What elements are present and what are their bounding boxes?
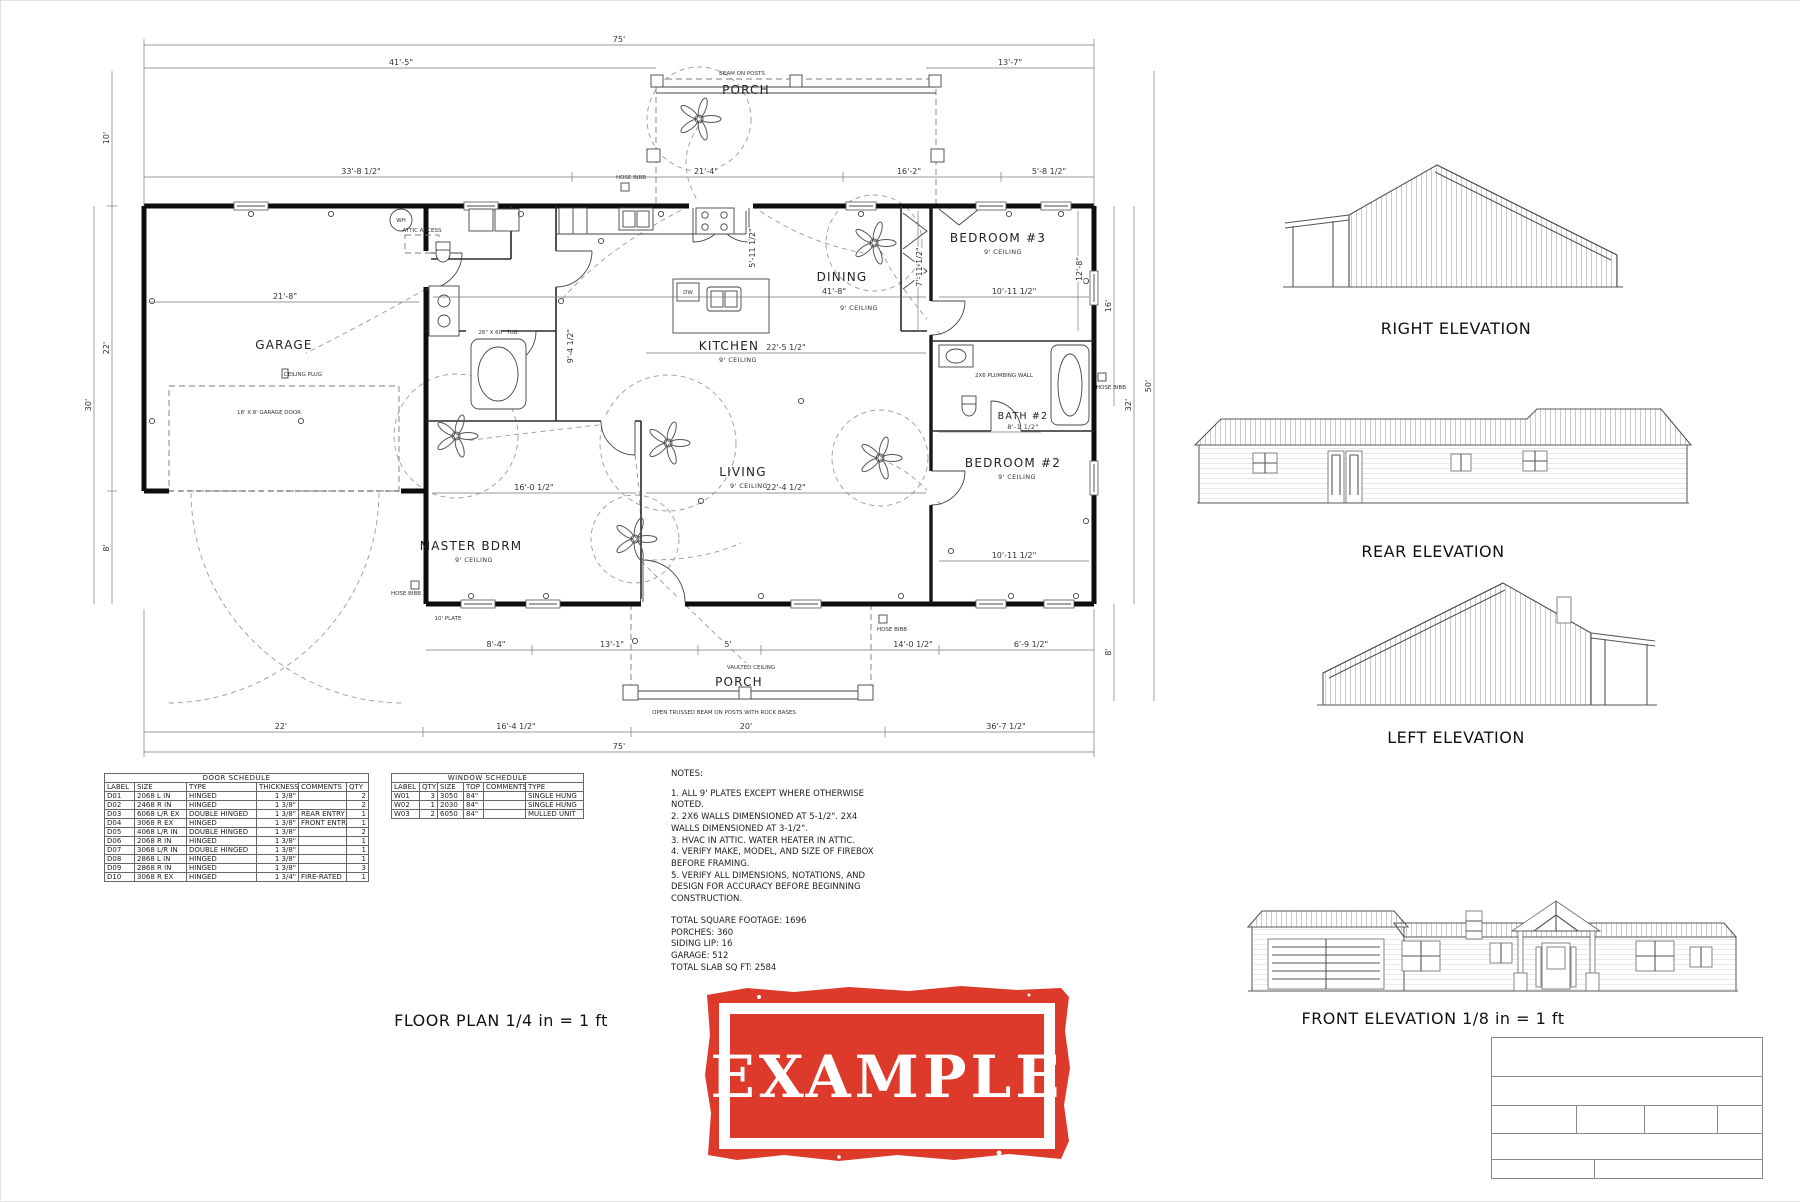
note-item: 5. VERIFY ALL DIMENSIONS, NOTATIONS, AND… (671, 871, 885, 906)
dim-b4: 14'-0 1/2" (893, 640, 932, 649)
dim-t6: 5'-8 1/2" (1032, 167, 1066, 176)
title-block-cell (1644, 1105, 1718, 1134)
window-cell: W03 (392, 810, 420, 819)
door-cell: HINGED (187, 837, 257, 846)
window-row: W013305084"SINGLE HUNG (392, 792, 584, 801)
door-cell: HINGED (187, 819, 257, 828)
door-row: D103068 R EXHINGED1 3/4"FIRE-RATED1 (105, 873, 369, 882)
door-cell: D02 (105, 801, 135, 810)
door-cell: 1 3/8" (257, 828, 299, 837)
open-trussed-note: OPEN TRUSSED BEAM ON POSTS WITH ROCK BAS… (652, 710, 796, 716)
door-cell: 2068 L IN (135, 792, 187, 801)
door-cell: 1 3/8" (257, 855, 299, 864)
wh-note: WH (396, 218, 406, 224)
window-cell (484, 810, 526, 819)
door-cell: D05 (105, 828, 135, 837)
door-cell: FRONT ENTRY (299, 819, 347, 828)
window-schedule: WINDOW SCHEDULE LABEL QTY SIZE TOP COMME… (391, 773, 584, 819)
room-kitchen: KITCHEN (699, 339, 759, 353)
window-col-comments: COMMENTS (484, 783, 526, 792)
door-col-size: SIZE (135, 783, 187, 792)
plumbing-wall-note: 2X6 PLUMBING WALL (975, 373, 1034, 379)
door-cell: 3 (347, 864, 369, 873)
porch-top-outline (647, 75, 944, 206)
rear-elevation-drawing (1193, 391, 1693, 521)
ceiling-fan-symbols (436, 97, 902, 561)
door-cell: 1 3/8" (257, 810, 299, 819)
door-cell: 1 3/8" (257, 819, 299, 828)
door-cell: 1 (347, 837, 369, 846)
window-col-top: TOP (464, 783, 484, 792)
dim-b6: 22' (275, 722, 287, 731)
dim-m10: 9'-4 1/2" (566, 329, 575, 363)
room-dining: DINING (817, 270, 868, 284)
dim-r4: 50' (1144, 380, 1153, 392)
total-garage: GARAGE: 512 (671, 951, 885, 963)
hose-bibb-bottom: HOSE BIBB (877, 627, 907, 633)
total-siding: SIDING LIP: 16 (671, 939, 885, 951)
dim-b1: 8'-4" (487, 640, 506, 649)
door-cell: 3068 L/R IN (135, 846, 187, 855)
window-cell: 84" (464, 792, 484, 801)
window-col-label: LABEL (392, 783, 420, 792)
window-col-qty: QTY (420, 783, 438, 792)
dim-m4: 16'-0 1/2" (514, 483, 553, 492)
door-row: D062068 R INHINGED1 3/8"1 (105, 837, 369, 846)
plate-note: 10' PLATE (435, 616, 462, 622)
window-row: W032605084"MULLED UNIT (392, 810, 584, 819)
dim-b9: 36'-7 1/2" (986, 722, 1025, 731)
right-elevation-drawing (1279, 149, 1627, 311)
door-cell: HINGED (187, 801, 257, 810)
dim-m7: 7'-11 1/2" (915, 247, 924, 286)
dim-t5: 16'-2" (897, 167, 921, 176)
door-cell: REAR ENTRY (299, 810, 347, 819)
dim-m5: 22'-4 1/2" (766, 483, 805, 492)
door-cell: 1 (347, 846, 369, 855)
door-cell: 2068 R IN (135, 837, 187, 846)
door-cell: 2 (347, 792, 369, 801)
title-block-cell (1491, 1076, 1763, 1106)
floor-plan-drawing: 75' 41'-5" 13'-7" 33'-8 1/2" 21'-4" 16'-… (81, 31, 1171, 771)
door-cell: 3068 R EX (135, 873, 187, 882)
door-cell: D01 (105, 792, 135, 801)
dimension-labels: 75' 41'-5" 13'-7" 33'-8 1/2" 21'-4" 16'-… (84, 35, 1153, 751)
door-cell: D04 (105, 819, 135, 828)
dim-m1: 41'-8" (822, 287, 846, 296)
door-cell: D08 (105, 855, 135, 864)
door-cell: DOUBLE HINGED (187, 846, 257, 855)
rear-elevation-caption: REAR ELEVATION (1283, 542, 1583, 561)
door-cell: HINGED (187, 864, 257, 873)
door-cell: HINGED (187, 855, 257, 864)
door-cell: 3068 R EX (135, 819, 187, 828)
dim-m2: 10'-11 1/2" (992, 287, 1037, 296)
total-slab: TOTAL SLAB SQ FT: 2584 (671, 963, 885, 975)
notes-title: NOTES: (671, 769, 885, 781)
door-cell: D09 (105, 864, 135, 873)
dim-m3: 22'-5 1/2" (766, 343, 805, 352)
hose-bibb-top: HOSE BIBB (616, 175, 646, 181)
dim-g1: 21'-8" (273, 292, 297, 301)
dim-overall-bottom: 75' (613, 742, 625, 751)
dim-l1: 10' (102, 132, 111, 144)
dim-t4: 21'-4" (694, 167, 718, 176)
walls (144, 206, 1094, 604)
door-cell: 6068 L/R EX (135, 810, 187, 819)
door-cell: 1 3/8" (257, 864, 299, 873)
door-cell (299, 792, 347, 801)
door-cell: HINGED (187, 792, 257, 801)
dw-note: DW (683, 290, 693, 296)
door-cell (299, 855, 347, 864)
title-block-cell (1491, 1133, 1763, 1160)
door-row: D043068 R EXHINGED1 3/8"FRONT ENTRY1 (105, 819, 369, 828)
door-cell: 1 (347, 873, 369, 882)
door-cell: 2 (347, 828, 369, 837)
window-cell: SINGLE HUNG (526, 801, 584, 810)
door-row: D092868 R INHINGED1 3/8"3 (105, 864, 369, 873)
door-schedule: DOOR SCHEDULE LABEL SIZE TYPE THICKNESS … (104, 773, 369, 882)
dim-t1: 41'-5" (389, 58, 413, 67)
floor-plan-caption: FLOOR PLAN 1/4 in = 1 ft (351, 1011, 651, 1030)
dim-b7: 16'-4 1/2" (496, 722, 535, 731)
door-cell: DOUBLE HINGED (187, 828, 257, 837)
door-cell: D07 (105, 846, 135, 855)
title-block-cell (1491, 1105, 1577, 1134)
dim-t3: 33'-8 1/2" (341, 167, 380, 176)
door-cell (299, 846, 347, 855)
door-cell: 1 3/8" (257, 837, 299, 846)
door-schedule-title: DOOR SCHEDULE (105, 774, 369, 783)
right-elevation-caption: RIGHT ELEVATION (1306, 319, 1606, 338)
note-item: 2. 2X6 WALLS DIMENSIONED AT 5-1/2". 2X4 … (671, 812, 885, 835)
door-cell: 1 3/8" (257, 792, 299, 801)
door-col-qty: QTY (347, 783, 369, 792)
window-cell (484, 792, 526, 801)
door-schedule-header-row: LABEL SIZE TYPE THICKNESS COMMENTS QTY (105, 783, 369, 792)
window-cell: 2030 (438, 801, 464, 810)
tub-note: 26" X 60" TUB (478, 330, 517, 336)
example-stamp: EXAMPLE (699, 983, 1075, 1169)
door-row: D012068 L INHINGED1 3/8"2 (105, 792, 369, 801)
window-cell: W02 (392, 801, 420, 810)
garage-door-outline (169, 386, 399, 491)
door-cell: 1 3/4" (257, 873, 299, 882)
note-item: 4. VERIFY MAKE, MODEL, AND SIZE OF FIREB… (671, 847, 885, 870)
door-cell: HINGED (187, 873, 257, 882)
hose-bibb-left: HOSE BIBB (391, 591, 421, 597)
room-dining-ceiling: 9' CEILING (840, 304, 878, 312)
window-cell: 3050 (438, 792, 464, 801)
room-living-ceiling: 9' CEILING (730, 482, 768, 490)
window-schedule-title: WINDOW SCHEDULE (392, 774, 584, 783)
door-cell (299, 828, 347, 837)
stamp-text: EXAMPLE (711, 1043, 1064, 1111)
dim-r3: 32' (1124, 399, 1133, 411)
door-row: D022468 R INHINGED1 3/8"2 (105, 801, 369, 810)
room-bedroom2: BEDROOM #2 (965, 456, 1061, 470)
window-cell: 1 (420, 801, 438, 810)
notes-block: NOTES: 1. ALL 9' PLATES EXCEPT WHERE OTH… (671, 769, 885, 975)
hose-bibb-right: HOSE BIBB (1096, 385, 1126, 391)
door-row: D036068 L/R EXDOUBLE HINGED1 3/8"REAR EN… (105, 810, 369, 819)
room-bath2: BATH #2 (998, 411, 1049, 422)
title-block-cell (1491, 1159, 1595, 1179)
door-cell: FIRE-RATED (299, 873, 347, 882)
dim-b2: 13'-1" (600, 640, 624, 649)
door-cell (299, 864, 347, 873)
door-col-thickness: THICKNESS (257, 783, 299, 792)
window-cell: 84" (464, 810, 484, 819)
window-cell: W01 (392, 792, 420, 801)
window-cell (484, 801, 526, 810)
door-cell (299, 801, 347, 810)
room-living: LIVING (719, 465, 766, 479)
note-item: 1. ALL 9' PLATES EXCEPT WHERE OTHERWISE … (671, 789, 885, 812)
dim-b3: 5' (724, 640, 731, 649)
window-schedule-header-row: LABEL QTY SIZE TOP COMMENTS TYPE (392, 783, 584, 792)
total-sqft: TOTAL SQUARE FOOTAGE: 1696 (671, 916, 885, 928)
drawing-sheet: 75' 41'-5" 13'-7" 33'-8 1/2" 21'-4" 16'-… (0, 0, 1800, 1202)
room-master-ceiling: 9' CEILING (455, 556, 493, 564)
vaulted-ceiling-note: VAULTED CEILING (727, 665, 775, 671)
title-block (1491, 1037, 1763, 1179)
room-garage: GARAGE (255, 338, 312, 352)
door-col-comments: COMMENTS (299, 783, 347, 792)
door-cell (299, 837, 347, 846)
note-item: 3. HVAC IN ATTIC. WATER HEATER IN ATTIC. (671, 836, 885, 848)
door-cell: 4068 L/R IN (135, 828, 187, 837)
garage-door-note: 18' X 8' GARAGE DOOR (237, 410, 301, 416)
window-cell: 6050 (438, 810, 464, 819)
ceiling-plug-note: CEILING PLUG (284, 372, 322, 378)
dim-overall-top: 75' (613, 35, 625, 44)
left-elevation-caption: LEFT ELEVATION (1306, 728, 1606, 747)
door-cell: 2 (347, 801, 369, 810)
door-cell: 1 3/8" (257, 846, 299, 855)
room-kitchen-ceiling: 9' CEILING (719, 356, 757, 364)
outlet-symbols (149, 211, 1088, 643)
door-cell: 1 3/8" (257, 801, 299, 810)
door-cell: D03 (105, 810, 135, 819)
title-block-cell (1576, 1105, 1645, 1134)
door-col-label: LABEL (105, 783, 135, 792)
window-cell: 84" (464, 801, 484, 810)
left-elevation-drawing (1313, 571, 1661, 723)
window-col-size: SIZE (438, 783, 464, 792)
window-row: W021203084"SINGLE HUNG (392, 801, 584, 810)
door-cell: 1 (347, 855, 369, 864)
door-cell: D06 (105, 837, 135, 846)
dim-b8: 20' (740, 722, 752, 731)
dim-t2: 13'-7" (998, 58, 1022, 67)
room-porch-bottom: PORCH (715, 675, 763, 689)
interior-walls (426, 206, 1094, 604)
door-cell: DOUBLE HINGED (187, 810, 257, 819)
door-cell: D10 (105, 873, 135, 882)
room-bedroom3-ceiling: 9' CEILING (984, 248, 1022, 256)
dim-r2: 8' (1104, 648, 1113, 655)
bath2-width: 8'-1 1/2" (1007, 423, 1039, 431)
door-cell: 2468 R IN (135, 801, 187, 810)
window-cell: MULLED UNIT (526, 810, 584, 819)
door-cell: 1 (347, 810, 369, 819)
dim-m8: 12'-8" (1075, 257, 1084, 281)
door-cell: 2868 R IN (135, 864, 187, 873)
dim-m6: 10'-11 1/2" (992, 551, 1037, 560)
fixtures (282, 183, 1106, 623)
dim-l4: 30' (84, 399, 93, 411)
window-cell: 3 (420, 792, 438, 801)
title-block-cell (1491, 1037, 1763, 1077)
room-bedroom3: BEDROOM #3 (950, 231, 1046, 245)
beam-on-posts-note: BEAM ON POSTS (719, 71, 765, 77)
room-master: MASTER BDRM (420, 539, 523, 553)
front-elevation-drawing (1244, 877, 1742, 1007)
door-cell: 1 (347, 819, 369, 828)
dimension-lines (94, 39, 1154, 757)
window-col-type: TYPE (526, 783, 584, 792)
window-cell: 2 (420, 810, 438, 819)
window-cell: SINGLE HUNG (526, 792, 584, 801)
door-cell: 2868 L IN (135, 855, 187, 864)
dim-r1: 16' (1104, 300, 1113, 312)
door-col-type: TYPE (187, 783, 257, 792)
door-row: D082868 L INHINGED1 3/8"1 (105, 855, 369, 864)
dim-l3: 8' (102, 544, 111, 551)
front-elevation-caption: FRONT ELEVATION 1/8 in = 1 ft (1283, 1009, 1583, 1028)
door-schedule-title-row: DOOR SCHEDULE (105, 774, 369, 783)
dim-l2: 22' (102, 342, 111, 354)
door-row: D073068 L/R INDOUBLE HINGED1 3/8"1 (105, 846, 369, 855)
title-block-cell (1594, 1159, 1763, 1179)
dim-m9: 5'-11 1/2" (748, 228, 757, 267)
room-bedroom2-ceiling: 9' CEILING (998, 473, 1036, 481)
room-porch-top: PORCH (722, 83, 770, 97)
dim-b5: 6'-9 1/2" (1014, 640, 1048, 649)
title-block-cell (1717, 1105, 1763, 1134)
total-porches: PORCHES: 360 (671, 928, 885, 940)
door-row: D054068 L/R INDOUBLE HINGED1 3/8"2 (105, 828, 369, 837)
window-schedule-title-row: WINDOW SCHEDULE (392, 774, 584, 783)
attic-access-note: ATTIC ACCESS (403, 228, 442, 234)
